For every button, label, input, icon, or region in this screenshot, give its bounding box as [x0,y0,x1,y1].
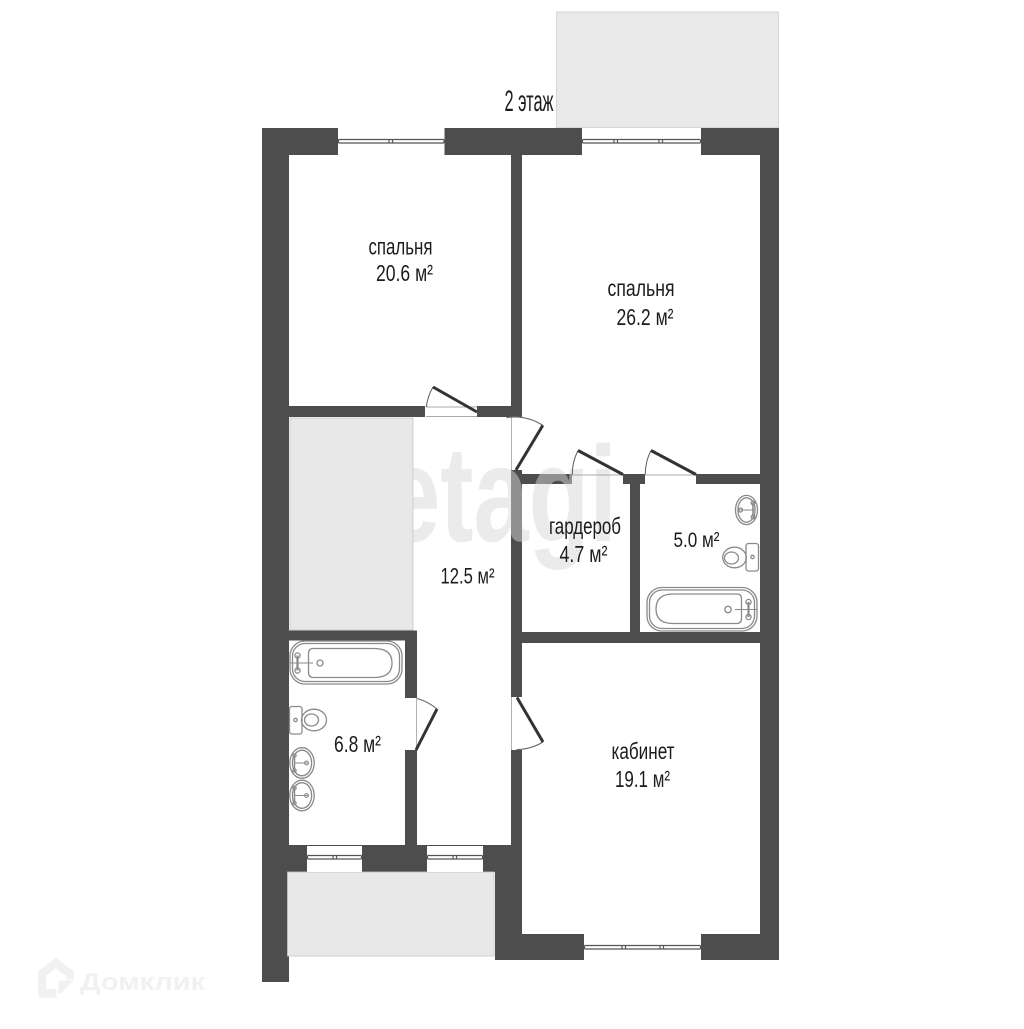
svg-text:кабинет: кабинет [612,738,675,764]
svg-text:4.7 м²: 4.7 м² [560,541,608,567]
svg-text:20.6 м²: 20.6 м² [376,260,433,286]
svg-text:Домклик: Домклик [80,969,206,996]
svg-text:спальня: спальня [608,275,675,301]
svg-text:2 этаж: 2 этаж [505,85,554,118]
svg-text:19.1 м²: 19.1 м² [615,766,670,792]
svg-text:5.0 м²: 5.0 м² [674,529,720,552]
svg-text:26.2 м²: 26.2 м² [617,304,674,330]
svg-text:6.8 м²: 6.8 м² [334,731,381,757]
svg-text:12.5 м²: 12.5 м² [441,564,495,589]
svg-text:гардероб: гардероб [549,513,621,539]
svg-text:спальня: спальня [369,234,433,260]
